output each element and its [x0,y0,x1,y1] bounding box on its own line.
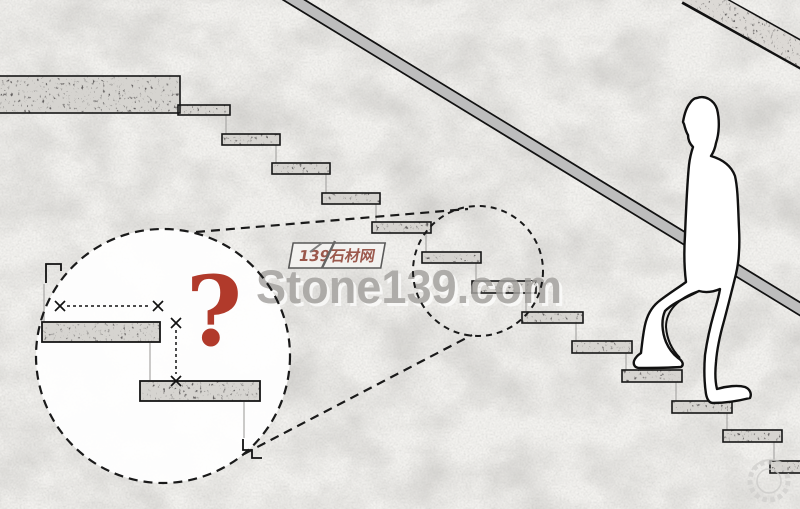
stairs-illustration: ? Stone139.com Stone139.com 139石材网 [0,0,800,509]
magnifier-circle-fill [36,229,290,483]
question-mark: ? [186,255,242,368]
site-label-text: 139石材网 [297,247,376,265]
detail-step [42,322,160,342]
illustration-canvas: ? Stone139.com Stone139.com 139石材网 [0,0,800,509]
stair-step [222,134,280,145]
stair-step [0,76,180,113]
stair-step [572,341,632,353]
stair-step [272,163,330,174]
detail-step [140,381,260,401]
stair-step [372,222,431,233]
stair-step [723,430,782,442]
detail-view: ? [36,229,290,483]
stair-step [178,105,230,115]
site-label-box: 139石材网 [289,243,385,268]
stair-step [322,193,380,204]
stair-step [622,370,682,382]
